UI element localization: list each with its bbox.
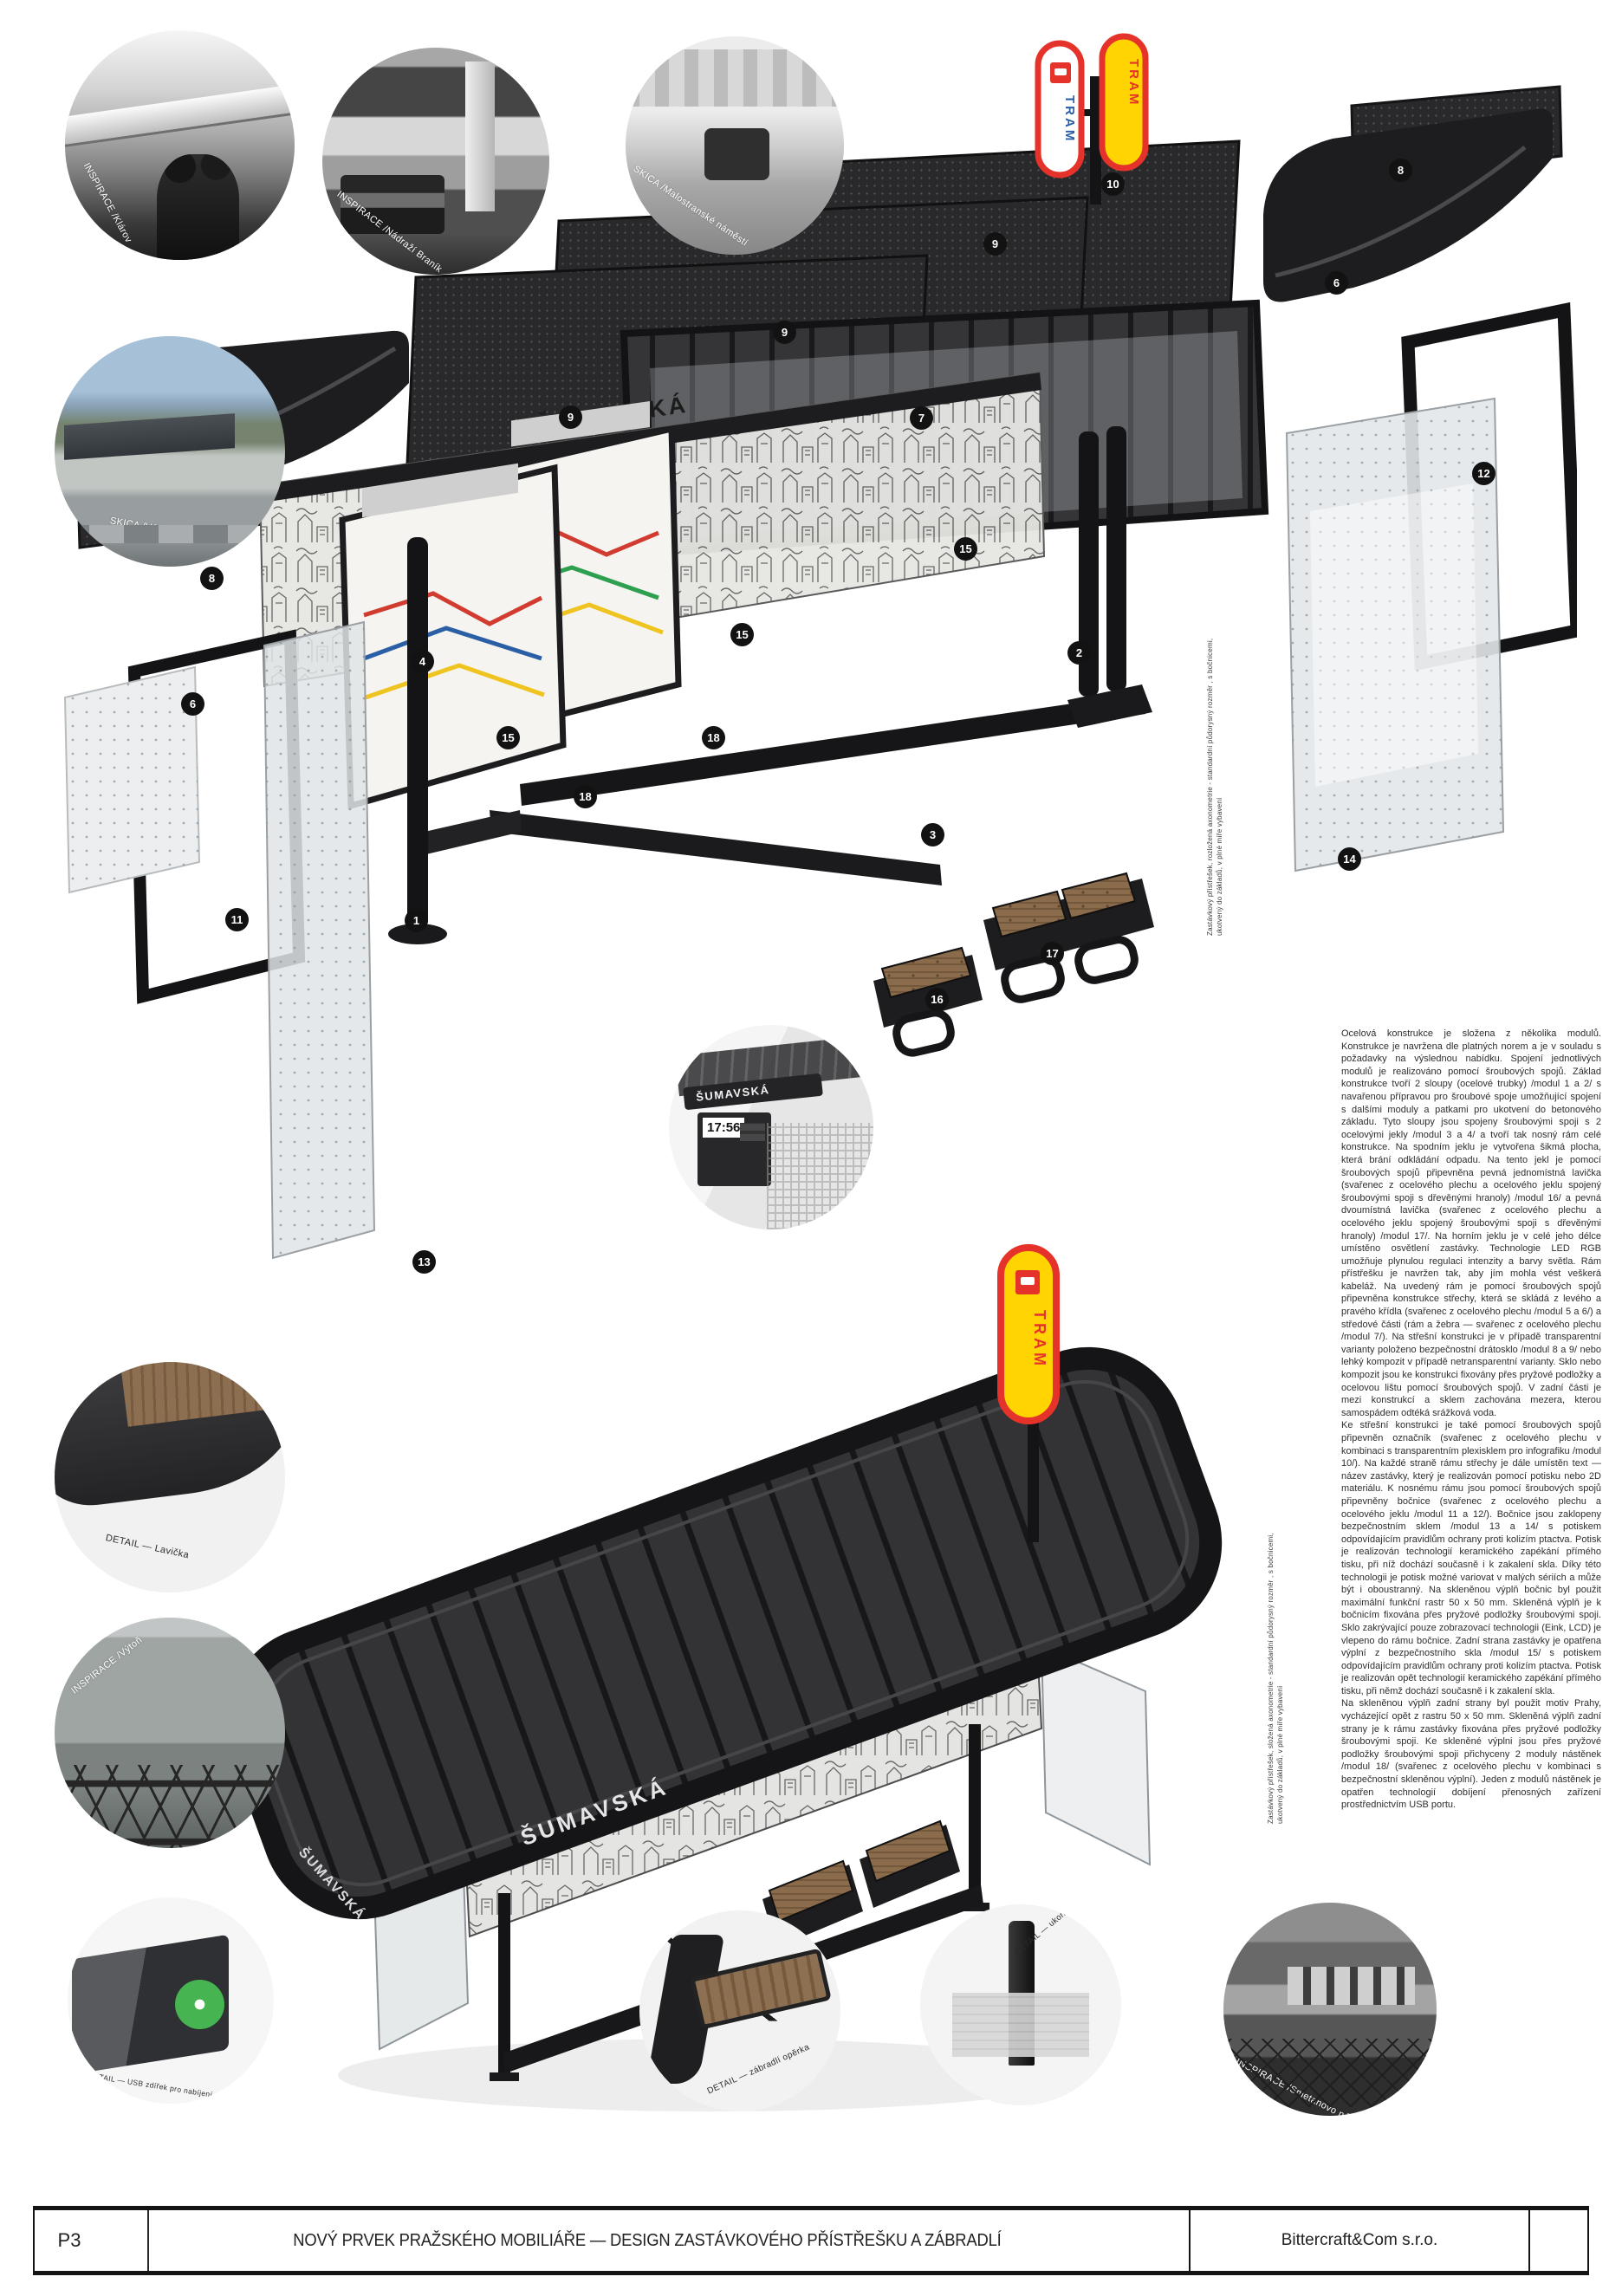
title-block: P3 NOVÝ PRVEK PRAŽSKÉHO MOBILIÁŘE — DESI… [33, 2206, 1589, 2275]
description-column: Ocelová konstrukce je složena z několika… [1341, 1028, 1601, 1812]
departure-time: 17:56 [703, 1118, 744, 1138]
detail-circle-railing-post: DETAIL — ukončení sloupku zábradlí [920, 1904, 1121, 2105]
photo-inspiration-smetanovo: INSPIRACE /Smetanovo nábřeží [1223, 1903, 1437, 2116]
detail-circle-side-panel: ŠUMAVSKÁ 17:56 DETAIL - zkrácená bočnice… [669, 1025, 873, 1229]
title-block-empty-cell [1528, 2210, 1589, 2271]
photo-caption: DETAIL — zábradlí opěrka [706, 2043, 811, 2097]
bench-single [873, 948, 983, 1055]
photo-caption: DETAIL — Lavička [104, 1533, 189, 1560]
photo-caption: INSPIRACE /Smetanovo nábřeží [1234, 2057, 1372, 2116]
description-paragraph-1: Ocelová konstrukce je složena z několika… [1341, 1028, 1601, 1419]
photo-caption: INSPIRACE /Výtoň [70, 1635, 145, 1696]
assembled-right-glass [1041, 1646, 1150, 1865]
sheet-title: NOVÝ PRVEK PRAŽSKÉHO MOBILIÁŘE — DESIGN … [147, 2210, 1145, 2271]
roof-wing-right [1263, 87, 1561, 302]
bench-double [983, 873, 1154, 1002]
detail-circle-usb: DETAIL — USB zdířek pro nabíjení přenosn… [68, 1897, 274, 2104]
photo-sketch-vyton: SKICA /Výtoň [55, 336, 285, 567]
description-paragraph-2: Ke střešní konstrukci je také pomocí šro… [1341, 1419, 1601, 1697]
sheet-code: P3 [33, 2210, 104, 2271]
photo-inspiration-branik: INSPIRACE /Nádraží Braník [322, 48, 549, 275]
assembled-view-caption: Zastávkový přístřešek, složená axonometr… [1267, 1505, 1285, 1824]
detail-circle-railing-armrest: DETAIL — zábradlí opěrka [639, 1910, 840, 2111]
company-name: Bittercraft&Com s.r.o. [1189, 2210, 1528, 2271]
departure-display: 17:56 [697, 1112, 771, 1186]
assembled-sign-text: TRAM [1031, 1310, 1048, 1369]
assembled-roof: ŠUMAVSKÁ ŠUMAVSKÁ [212, 1334, 1238, 1941]
detail-circle-bench: DETAIL — Lavička [55, 1362, 285, 1592]
side-glass-right [1287, 399, 1503, 871]
photo-inspiration-vyton-river: INSPIRACE /Výtoň [55, 1618, 285, 1848]
departure-rows-graphic [740, 1123, 765, 1140]
side-glass-left [264, 622, 374, 1258]
exploded-view-caption: Zastávkový přístřešek, rozložená axonome… [1206, 617, 1224, 936]
perforated-sheet [65, 667, 199, 892]
detail-mesh-graphic [767, 1123, 873, 1229]
photo-inspiration-shelter: INSPIRACE /Klárov [65, 30, 295, 260]
detail-stop-name: ŠUMAVSKÁ [695, 1083, 770, 1104]
presentation-board: ŠUMAVSKÁ ŠUMAVSKÁ [0, 0, 1622, 2296]
stop-sign-text-right: TRAM [1126, 59, 1141, 107]
photo-caption: SKICA /Výtoň [109, 516, 172, 537]
description-paragraph-3: Na skleněnou výplň zadní strany byl použ… [1341, 1697, 1601, 1811]
stop-sign-text-left: TRAM [1062, 95, 1077, 143]
photo-sketch-malostranske: SKICA /Malostranské náměstí [626, 36, 844, 255]
